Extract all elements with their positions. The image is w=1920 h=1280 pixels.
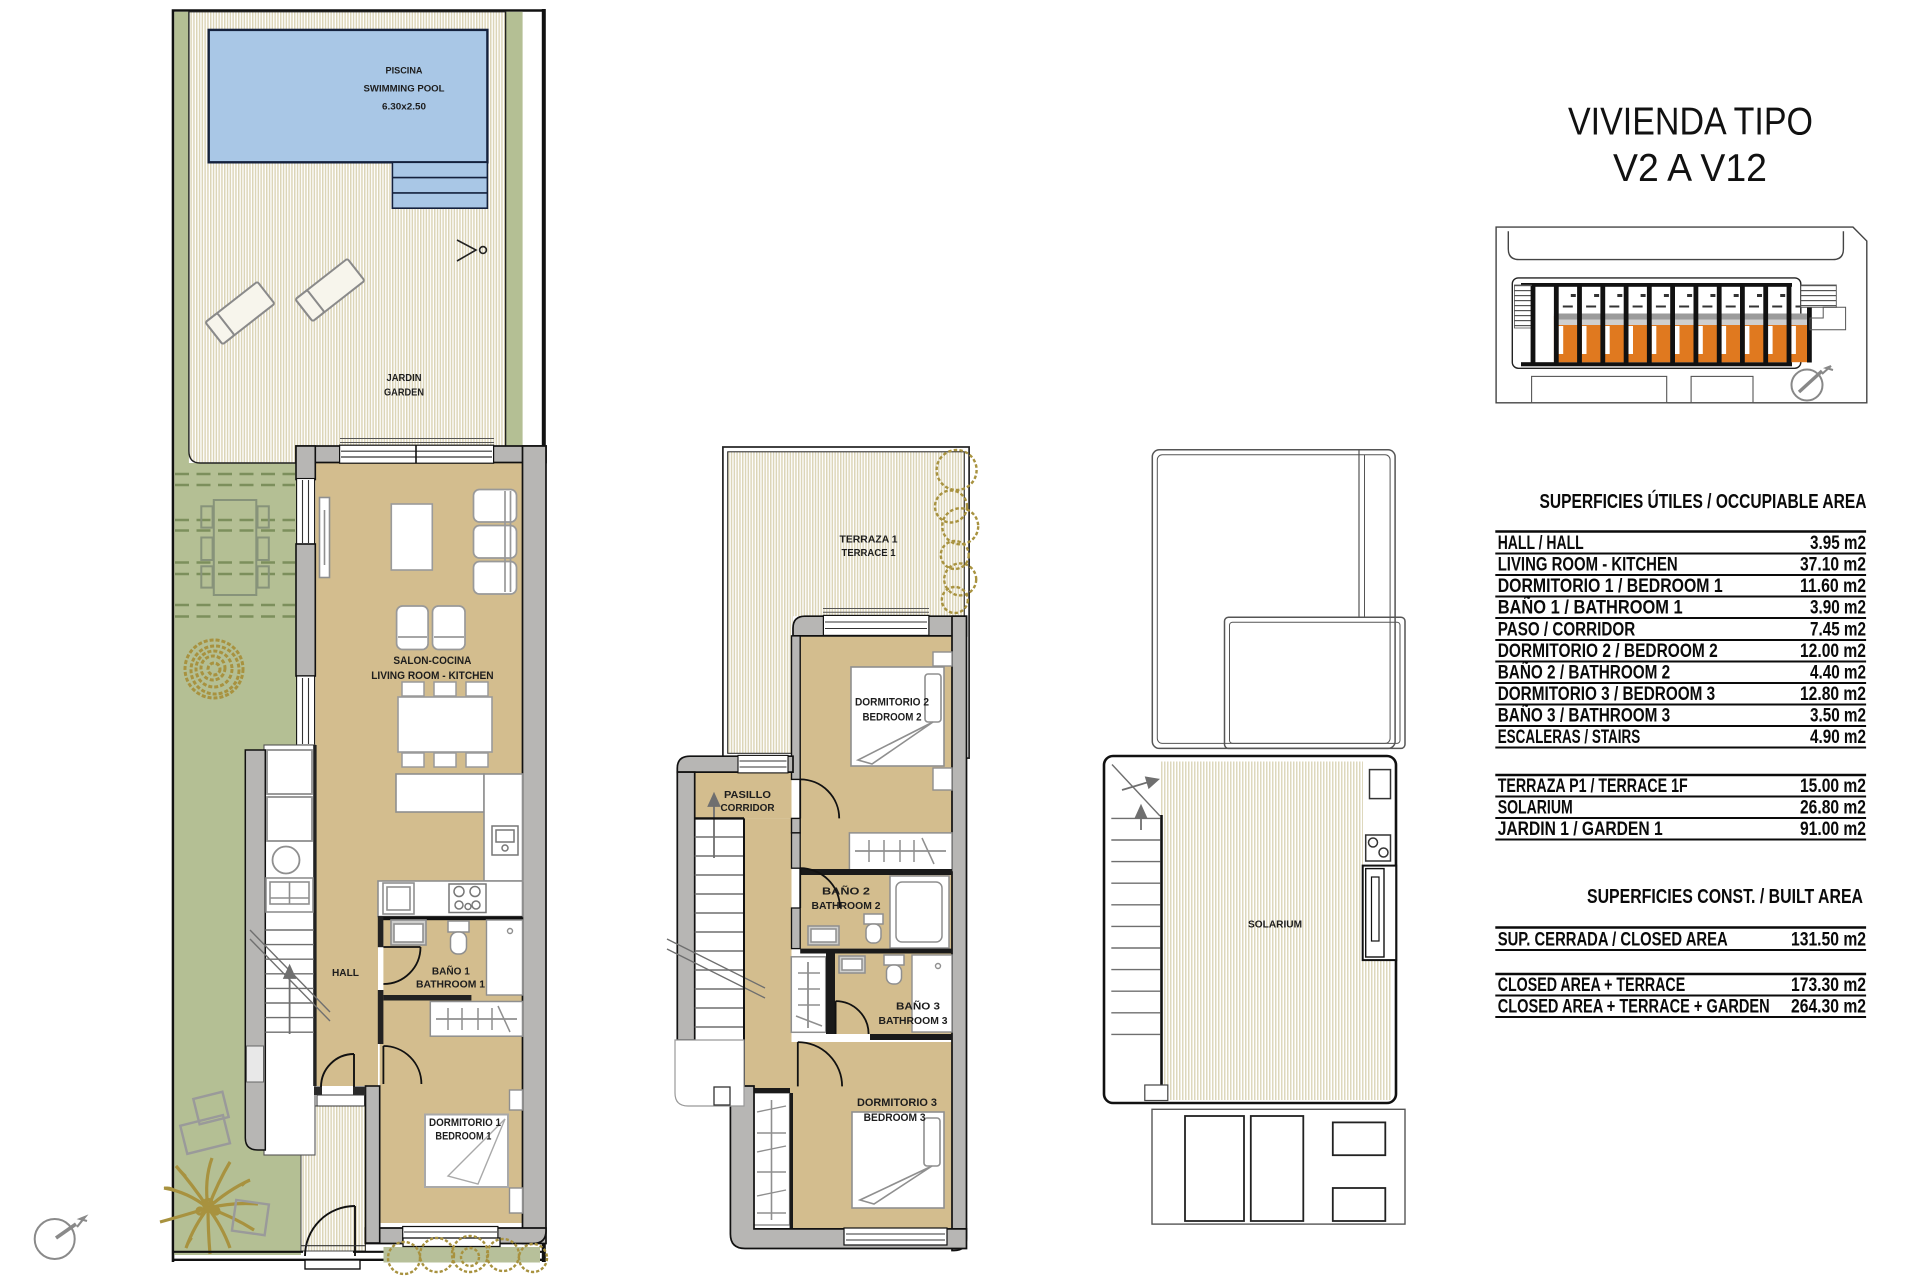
svg-text:JARDIN 1 / GARDEN 1: JARDIN 1 / GARDEN 1 xyxy=(1498,819,1663,840)
svg-text:JARDIN: JARDIN xyxy=(387,372,422,384)
svg-text:264.30 m2: 264.30 m2 xyxy=(1791,997,1866,1018)
svg-text:3.90 m2: 3.90 m2 xyxy=(1810,598,1866,619)
svg-text:BATHROOM 2: BATHROOM 2 xyxy=(812,900,881,912)
svg-text:BEDROOM 2: BEDROOM 2 xyxy=(863,711,922,723)
svg-text:TERRAZA P1 / TERRACE 1F: TERRAZA P1 / TERRACE 1F xyxy=(1498,776,1688,797)
svg-text:VIVIENDA TIPO: VIVIENDA TIPO xyxy=(1568,101,1813,144)
svg-text:DORMITORIO 1 / BEDROOM 1: DORMITORIO 1 / BEDROOM 1 xyxy=(1498,576,1723,597)
svg-text:LIVING ROOM - KITCHEN: LIVING ROOM - KITCHEN xyxy=(371,670,493,682)
svg-text:12.80 m2: 12.80 m2 xyxy=(1800,684,1866,705)
svg-text:BEDROOM 3: BEDROOM 3 xyxy=(864,1112,926,1124)
svg-text:BAÑO 3 / BATHROOM 3: BAÑO 3 / BATHROOM 3 xyxy=(1498,705,1671,727)
svg-text:BAÑO 2: BAÑO 2 xyxy=(822,885,870,898)
svg-text:BAÑO 3: BAÑO 3 xyxy=(896,999,940,1012)
svg-text:SUPERFICIES CONST. / BUILT AR: SUPERFICIES CONST. / BUILT AREA xyxy=(1587,886,1863,908)
svg-text:12.00 m2: 12.00 m2 xyxy=(1800,641,1866,662)
svg-text:DORMITORIO 3 / BEDROOM 3: DORMITORIO 3 / BEDROOM 3 xyxy=(1498,684,1716,705)
svg-text:TERRAZA 1: TERRAZA 1 xyxy=(840,533,898,545)
svg-text:3.50 m2: 3.50 m2 xyxy=(1810,706,1866,727)
svg-text:HALL: HALL xyxy=(332,967,360,979)
svg-text:SUP. CERRADA / CLOSED AREA: SUP. CERRADA / CLOSED AREA xyxy=(1498,930,1728,951)
svg-text:4.40 m2: 4.40 m2 xyxy=(1810,663,1866,684)
svg-text:SUPERFICIES ÚTILES / OCCUPIABL: SUPERFICIES ÚTILES / OCCUPIABLE AREA xyxy=(1540,489,1867,513)
svg-text:11.60 m2: 11.60 m2 xyxy=(1800,576,1866,597)
svg-text:DORMITORIO 3: DORMITORIO 3 xyxy=(857,1097,937,1109)
svg-text:SALON-COCINA: SALON-COCINA xyxy=(393,655,471,667)
svg-text:BATHROOM 1: BATHROOM 1 xyxy=(416,978,485,990)
svg-text:LIVING ROOM - KITCHEN: LIVING ROOM - KITCHEN xyxy=(1498,555,1678,576)
svg-text:DORMITORIO 2 / BEDROOM 2: DORMITORIO 2 / BEDROOM 2 xyxy=(1498,641,1718,662)
svg-text:ESCALERAS / STAIRS: ESCALERAS / STAIRS xyxy=(1498,727,1641,748)
svg-text:PISCINA: PISCINA xyxy=(386,66,423,77)
svg-text:15.00 m2: 15.00 m2 xyxy=(1800,776,1866,797)
svg-text:37.10 m2: 37.10 m2 xyxy=(1800,555,1866,576)
svg-text:SOLARIUM: SOLARIUM xyxy=(1498,798,1573,819)
svg-text:4.90 m2: 4.90 m2 xyxy=(1810,727,1866,748)
svg-text:26.80 m2: 26.80 m2 xyxy=(1800,798,1866,819)
svg-text:SWIMMING POOL: SWIMMING POOL xyxy=(364,84,445,95)
svg-text:BAÑO 2 / BATHROOM 2: BAÑO 2 / BATHROOM 2 xyxy=(1498,662,1671,684)
svg-text:6.30x2.50: 6.30x2.50 xyxy=(382,102,426,113)
svg-text:SOLARIUM: SOLARIUM xyxy=(1248,919,1302,931)
svg-text:3.95 m2: 3.95 m2 xyxy=(1810,533,1866,554)
svg-text:BATHROOM 3: BATHROOM 3 xyxy=(879,1015,948,1027)
svg-text:V2 A V12: V2 A V12 xyxy=(1613,147,1767,190)
svg-text:7.45 m2: 7.45 m2 xyxy=(1810,620,1866,641)
svg-text:GARDEN: GARDEN xyxy=(384,387,424,399)
svg-text:HALL / HALL: HALL / HALL xyxy=(1498,533,1584,554)
svg-text:CLOSED AREA + TERRACE: CLOSED AREA + TERRACE xyxy=(1498,975,1686,996)
svg-text:DORMITORIO 2: DORMITORIO 2 xyxy=(855,697,929,709)
svg-text:173.30 m2: 173.30 m2 xyxy=(1791,975,1866,996)
svg-text:BEDROOM 1: BEDROOM 1 xyxy=(435,1131,491,1143)
svg-text:BAÑO 1: BAÑO 1 xyxy=(432,964,470,977)
svg-text:PASO / CORRIDOR: PASO / CORRIDOR xyxy=(1498,620,1636,641)
svg-text:131.50 m2: 131.50 m2 xyxy=(1791,930,1866,951)
svg-text:TERRACE 1: TERRACE 1 xyxy=(842,547,896,559)
svg-text:CORRIDOR: CORRIDOR xyxy=(721,802,775,814)
svg-text:BAÑO 1 / BATHROOM 1: BAÑO 1 / BATHROOM 1 xyxy=(1498,597,1683,619)
svg-text:CLOSED AREA + TERRACE + GARDEN: CLOSED AREA + TERRACE + GARDEN xyxy=(1498,997,1770,1018)
svg-text:DORMITORIO 1: DORMITORIO 1 xyxy=(429,1117,501,1129)
svg-text:PASILLO: PASILLO xyxy=(724,789,771,801)
svg-text:91.00 m2: 91.00 m2 xyxy=(1800,819,1866,840)
